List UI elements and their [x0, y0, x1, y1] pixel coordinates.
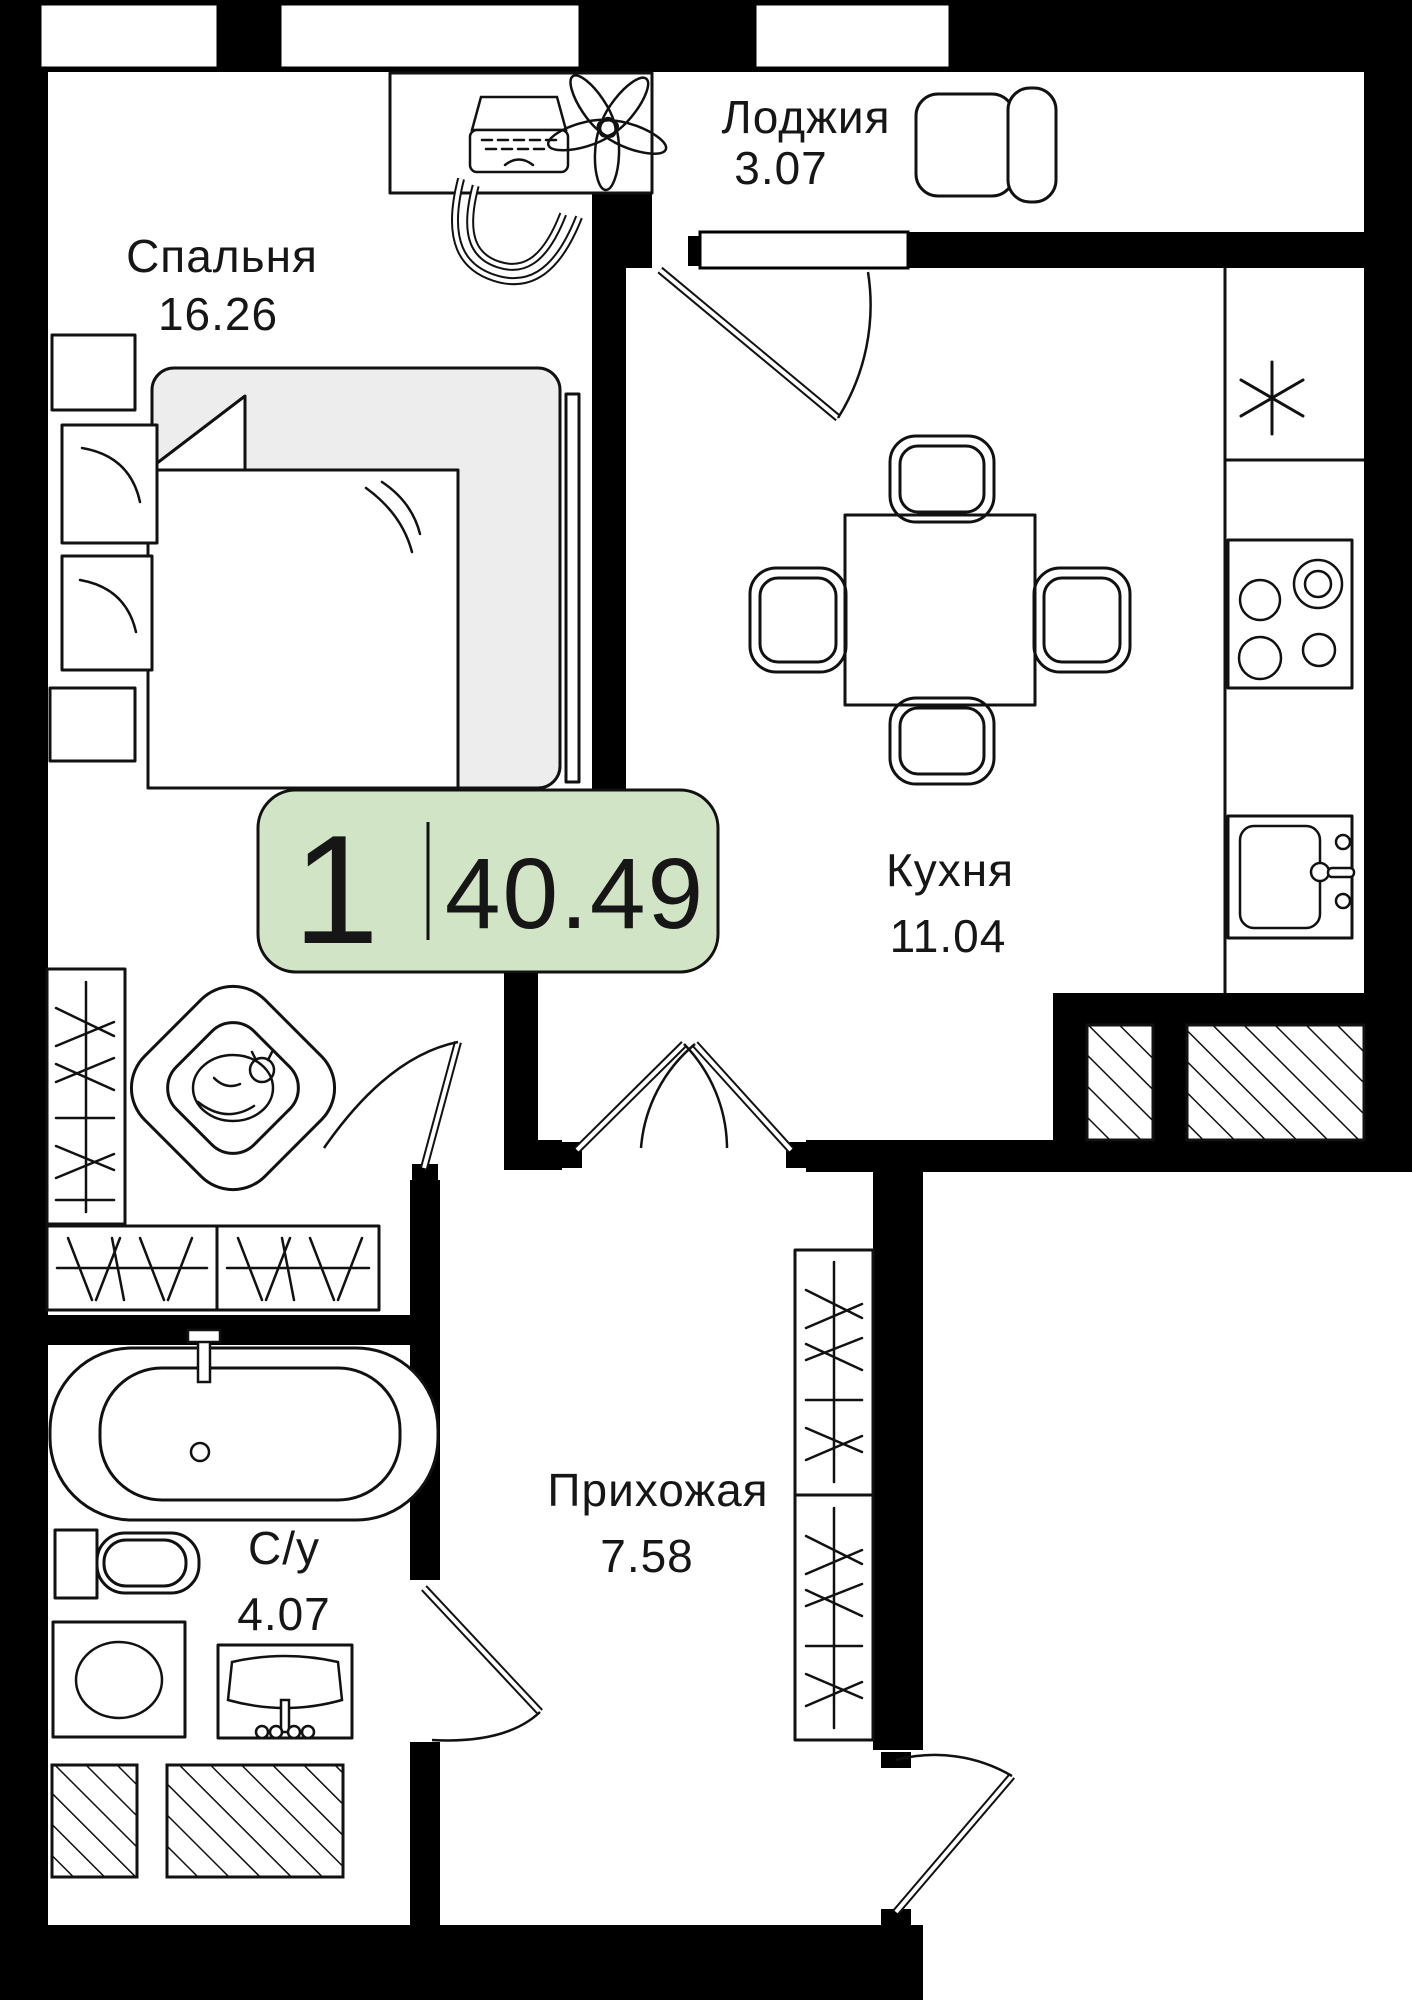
window-icon — [755, 4, 950, 68]
floor-plan: 1 40.49 Спальня 16.26 Лоджия 3.07 Кухня … — [0, 0, 1412, 2000]
summary-badge: 1 40.49 — [258, 790, 718, 976]
badge-room-count: 1 — [293, 803, 379, 976]
toilet-icon — [55, 1530, 199, 1598]
dining-table-icon — [750, 436, 1130, 784]
nightstand-icon — [50, 335, 157, 761]
window-icon — [40, 4, 218, 68]
office-chair-icon — [435, 179, 579, 297]
loggia-label: Лоджия — [722, 91, 891, 143]
wardrobe-hangers-icon — [47, 969, 125, 1224]
tv-panel-icon — [566, 394, 579, 782]
washing-machine-icon — [53, 1622, 185, 1737]
bathroom-area: 4.07 — [237, 1588, 331, 1640]
kitchen-area: 11.04 — [890, 910, 1007, 962]
wardrobe-hangers-icon — [795, 1250, 873, 1740]
bedroom-area: 16.26 — [158, 288, 278, 340]
door-pivot — [412, 1564, 438, 1580]
fridge-asterisk-icon — [1241, 362, 1303, 434]
kitchen-sink-icon — [1228, 816, 1354, 938]
window-icon — [280, 4, 580, 68]
ventilation-shaft-hatch — [52, 1765, 343, 1877]
ventilation-shaft-hatch — [1087, 1025, 1364, 1140]
dining-chair-icon — [750, 436, 1130, 784]
bathroom-label: С/у — [248, 1522, 320, 1574]
washbasin-icon — [218, 1645, 352, 1738]
armchair-with-cat-icon — [113, 968, 353, 1208]
loggia-area: 3.07 — [734, 142, 828, 194]
window-icon — [700, 232, 908, 268]
bedroom-label: Спальня — [126, 230, 318, 282]
wardrobe-hangers-icon — [47, 1226, 379, 1310]
stove-burners-icon — [1228, 540, 1352, 688]
kitchen-label: Кухня — [886, 844, 1014, 896]
bed-icon — [148, 368, 560, 788]
bathtub-icon — [50, 1330, 438, 1520]
loggia-armchair-icon — [916, 88, 1056, 202]
badge-total-area: 40.49 — [445, 838, 705, 950]
hallway-label: Прихожая — [547, 1464, 768, 1516]
hallway-area: 7.58 — [600, 1530, 694, 1582]
floor-plan-svg: 1 40.49 Спальня 16.26 Лоджия 3.07 Кухня … — [0, 0, 1412, 2000]
